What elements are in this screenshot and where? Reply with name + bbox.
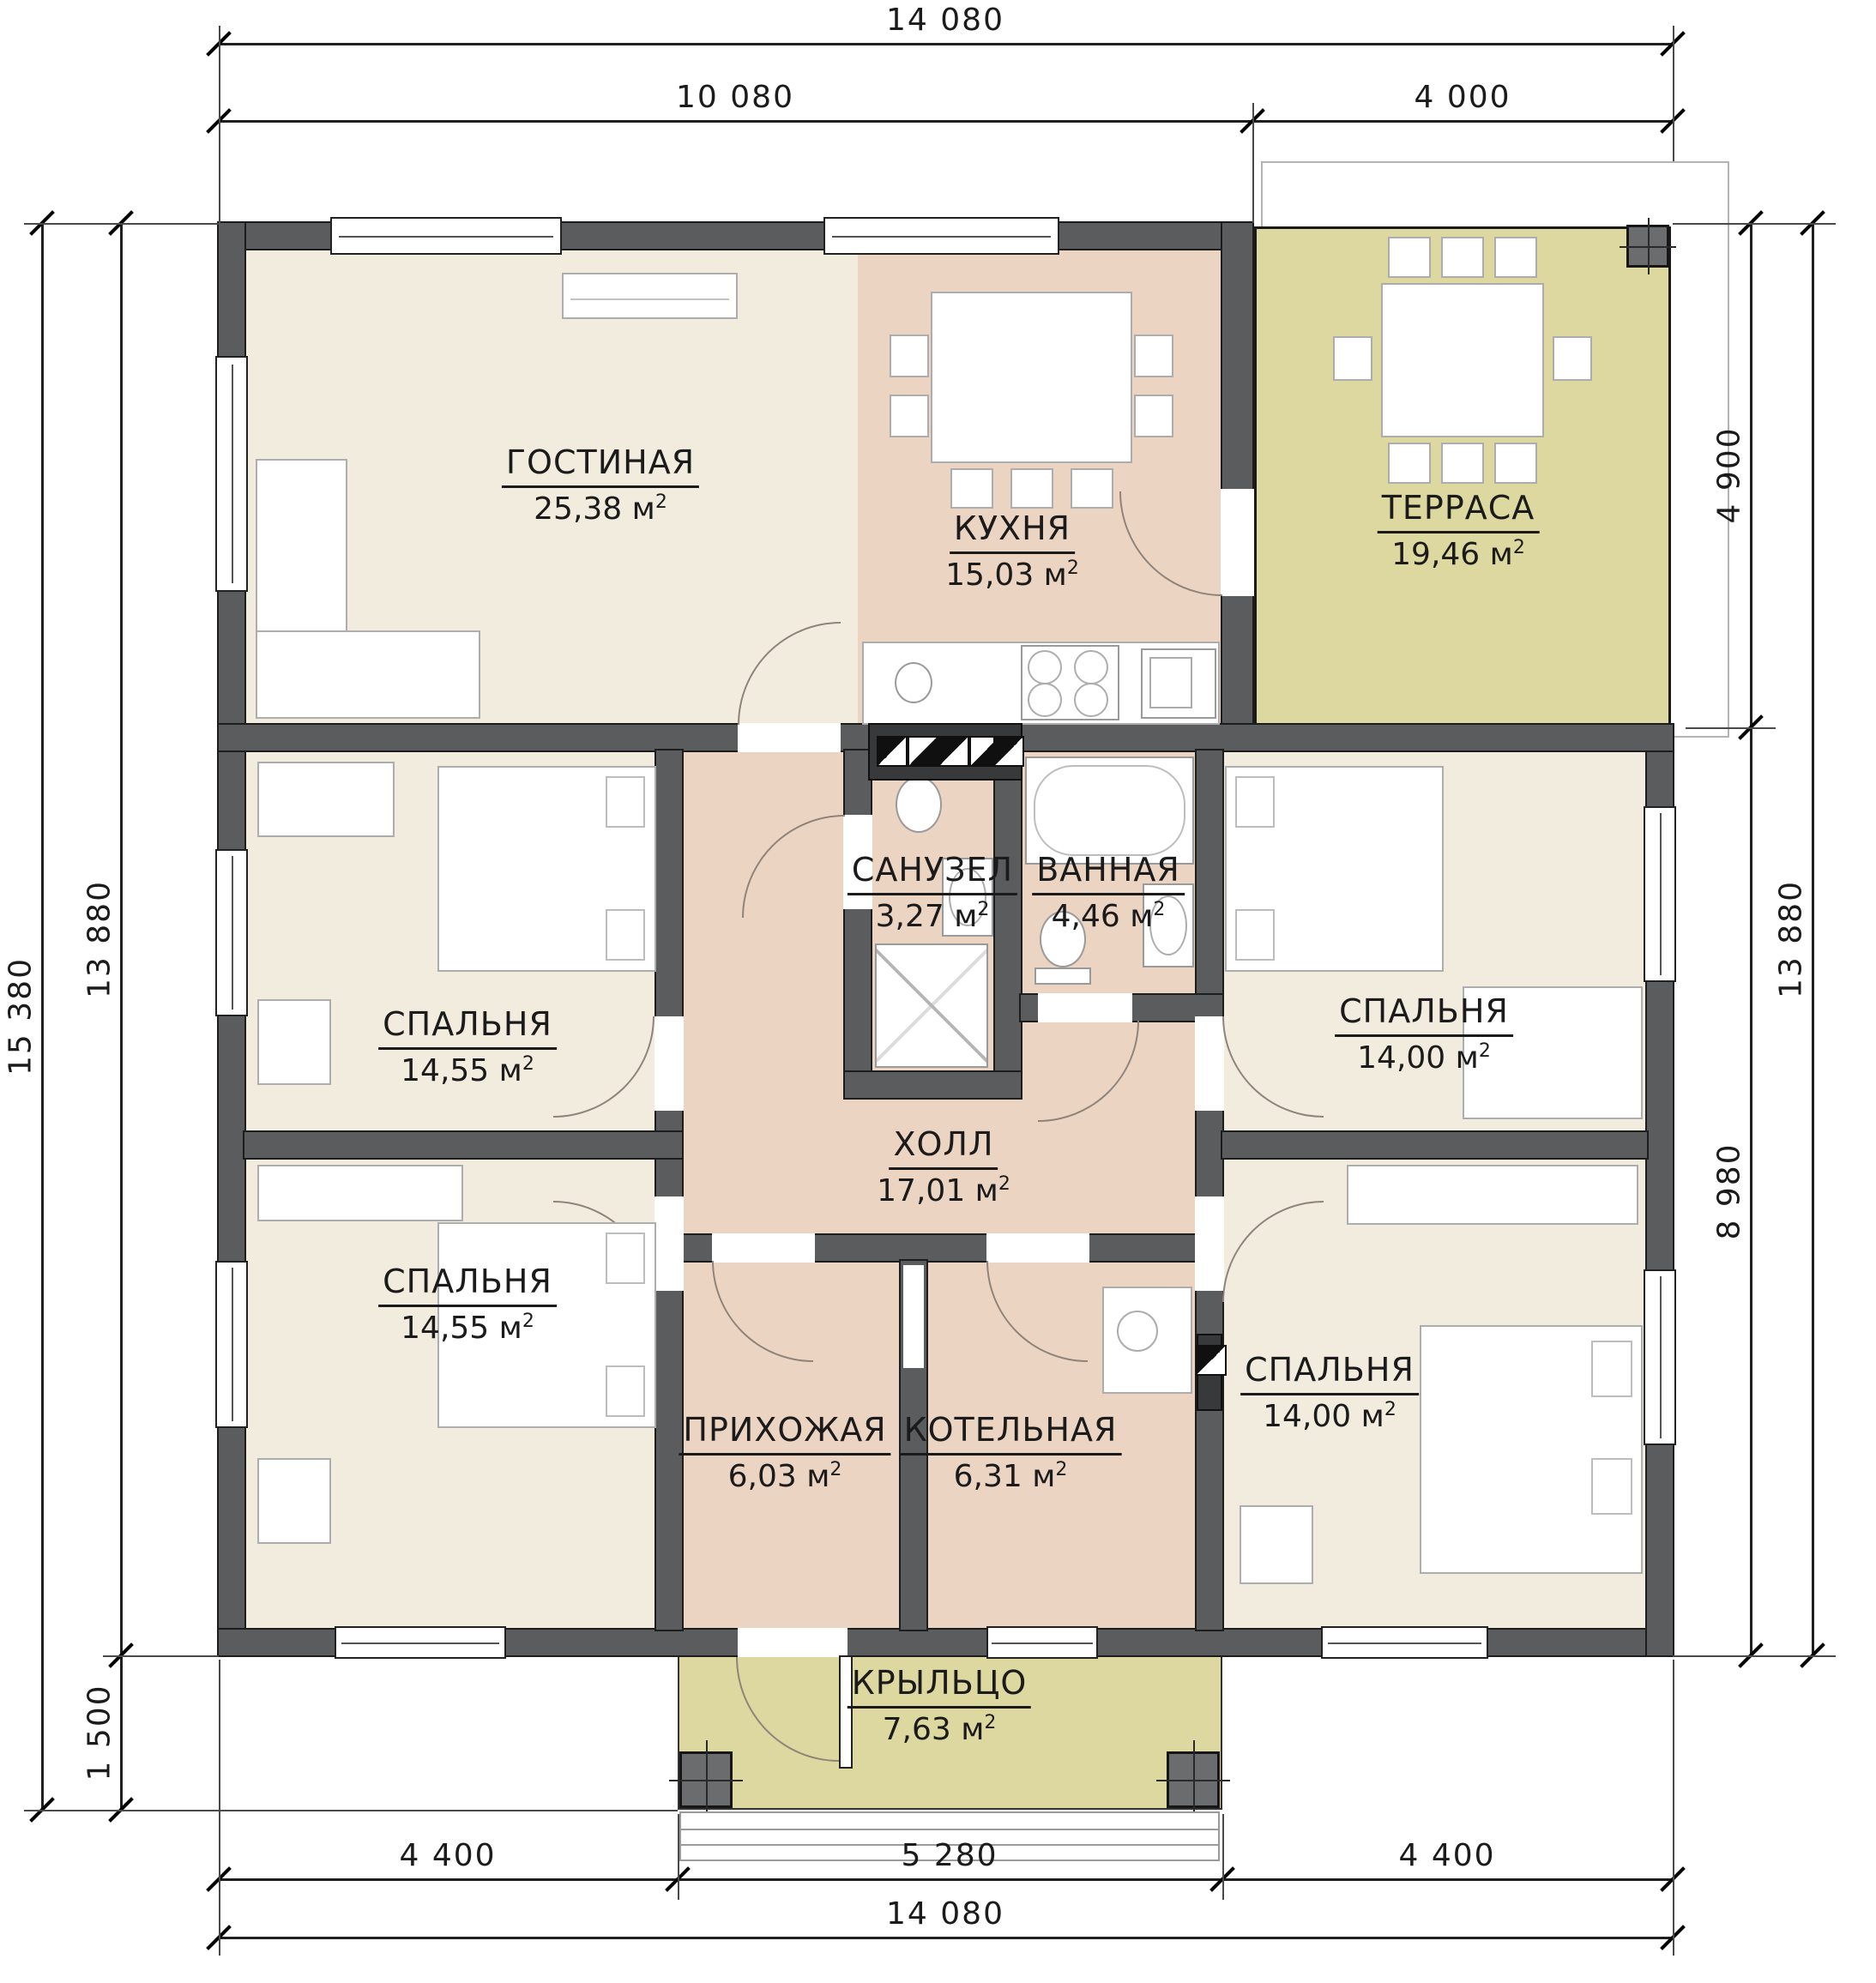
dim-line-top-inner [219,120,1673,123]
terrace-chair [1494,237,1537,278]
tv-unit [562,273,738,319]
extension-line [24,223,219,225]
extension-line [103,1655,219,1657]
vent-cell [908,736,938,767]
pillow [606,909,645,961]
wardrobe [1347,1165,1638,1225]
room-name: СПАЛЬНЯ [378,1005,557,1050]
opening-bedroom-tl [654,1016,684,1111]
room-label-bedroom-br: СПАЛЬНЯ 14,00 м2 [1240,1351,1419,1434]
room-name: КОТЕЛЬНАЯ [900,1411,1122,1456]
room-name: СПАЛЬНЯ [1240,1351,1419,1395]
room-name: КУХНЯ [950,509,1075,554]
dim-bottom-center: 5 280 [901,1838,998,1873]
vent-cell [1196,1345,1227,1376]
stove-burner [1074,650,1108,684]
wall-left-bedrooms [656,750,682,1630]
room-area: 14,00 м2 [1240,1399,1419,1434]
dim-left-porch: 1 500 [82,1684,118,1781]
extension-line [1222,1814,1224,1900]
opening-bedroom-tr [1195,1016,1224,1111]
vent-cell [993,736,1024,767]
window-bedroom-br-right [1644,1269,1676,1445]
extension-line [219,26,220,223]
room-area: 15,03 м2 [945,558,1079,593]
bath-toilet-tank [1035,967,1091,985]
kitchen-sink [895,662,932,703]
dining-chair [890,335,929,377]
extension-line [24,1810,678,1811]
window-kitchen-top [823,217,1059,255]
room-name: СПАЛЬНЯ [1335,992,1513,1037]
dim-top-terrace: 4 000 [1414,80,1511,115]
room-label-porch: КРЫЛЬЦО 7,63 м2 [848,1664,1031,1747]
room-label-terrace: ТЕРРАСА 19,46 м2 [1378,489,1540,572]
shower [875,943,988,1068]
room-label-wc: САНУЗЕЛ 3,27 м2 [848,851,1017,934]
dim-line-right-inner [1750,223,1752,1655]
dim-right-terrace: 4 900 [1712,426,1747,523]
armchair [257,1458,331,1544]
fridge-inner [1149,657,1192,708]
dim-right-bedrooms: 8 980 [1712,1142,1747,1239]
room-name: ХОЛЛ [889,1125,998,1170]
wall-left-bedrooms-divider [244,1132,682,1158]
room-name: СПАЛЬНЯ [378,1263,557,1307]
room-name: ТЕРРАСА [1378,489,1540,533]
terrace-chair [1553,336,1592,381]
opening-boiler [986,1233,1089,1263]
dim-left-house: 13 880 [82,880,118,998]
porch-column [679,1751,733,1808]
dim-bottom-left: 4 400 [399,1838,496,1873]
opening-bedroom-br [1195,1196,1224,1291]
wall-wc-bottom [845,1072,1021,1098]
armchair [1240,1505,1313,1584]
room-area: 4,46 м2 [1032,899,1185,934]
dim-bottom-right: 4 400 [1398,1838,1495,1873]
dining-table [931,292,1132,463]
extension-line [1252,103,1254,223]
dim-top-total: 14 080 [886,3,1004,38]
room-label-kitchen: КУХНЯ 15,03 м2 [945,509,1079,593]
dining-chair [890,395,929,437]
porch-column [1167,1751,1220,1808]
dining-chair [950,468,993,509]
terrace-chair [1333,336,1372,381]
pillow [1235,909,1275,961]
terrace-chair [1388,443,1431,484]
pillow [606,1365,645,1417]
room-area: 3,27 м2 [848,899,1017,934]
window-bedroom-bl-bottom [335,1626,506,1659]
opening-living-hall [738,723,841,752]
stove-burner [1074,683,1108,717]
opening-entrance-door [738,1628,848,1657]
boiler-burner [1117,1311,1158,1352]
terrace-chair [1441,237,1484,278]
window-bedroom-tr-right [1644,806,1676,982]
window-boiler-porch [986,1626,1098,1659]
wall-right-bedrooms-divider [1222,1132,1647,1158]
stove-burner [1028,683,1062,717]
wall-kitchen-terrace [1222,223,1252,750]
dim-line-right-outer [1812,223,1814,1655]
window-living-top [330,217,562,255]
opening-kitchen-terrace [1221,489,1254,596]
wardrobe [257,1165,463,1221]
room-area: 14,55 м2 [378,1311,557,1346]
extension-line [1673,1660,1674,1956]
sofa-bottom-section [256,630,480,719]
bathtub-inner [1034,765,1185,856]
room-area: 6,31 м2 [900,1459,1122,1494]
window-bedroom-br-bottom [1321,1626,1488,1659]
dining-chair [1071,468,1113,509]
extension-line [1686,727,1776,729]
room-label-bedroom-tl: СПАЛЬНЯ 14,55 м2 [378,1005,557,1088]
dim-line-left-inner [120,223,123,1810]
dim-line-bottom-outer [219,1937,1673,1939]
room-area: 14,00 м2 [1335,1040,1513,1076]
pillow [606,776,645,828]
room-label-boiler: КОТЕЛЬНАЯ 6,31 м2 [900,1411,1122,1494]
room-area: 7,63 м2 [848,1712,1031,1747]
toilet-bowl [896,776,942,833]
room-area: 25,38 м2 [502,491,699,527]
dining-chair [1134,335,1173,377]
dim-line-top-outer [219,43,1673,45]
wall-right-bedrooms [1197,750,1222,1630]
room-area: 6,03 м2 [679,1459,890,1494]
window-living-left [215,356,248,592]
room-label-bedroom-tr: СПАЛЬНЯ 14,00 м2 [1335,992,1513,1076]
room-name: САНУЗЕЛ [848,851,1017,895]
dim-line-bottom-inner [219,1878,1673,1881]
dim-line-left-outer [41,223,44,1810]
dim-left-total: 15 380 [3,957,39,1076]
pillow [1591,1341,1632,1397]
dim-top-main: 10 080 [676,80,794,115]
dining-chair [1134,395,1173,437]
opening-bedroom-bl [654,1196,684,1291]
window-bedroom-tl-left [215,849,248,1016]
extension-line [1673,26,1674,161]
terrace-chair [1441,443,1484,484]
room-name: ПРИХОЖАЯ [679,1411,890,1456]
armchair [257,999,331,1085]
dining-chair [1010,468,1053,509]
terrace-chair [1388,237,1431,278]
bathtub [1025,756,1194,865]
extension-line [678,1814,679,1900]
extension-line [1673,223,1836,225]
room-label-bedroom-bl: СПАЛЬНЯ 14,55 м2 [378,1263,557,1346]
dresser [257,762,395,837]
pillow [1235,776,1275,828]
extension-line [1673,1655,1836,1657]
terrace-table [1381,283,1544,437]
extension-line [219,1660,220,1956]
floor-plan: ГОСТИНАЯ 25,38 м2 КУХНЯ 15,03 м2 ТЕРРАСА… [0,0,1876,1983]
room-label-entry: ПРИХОЖАЯ 6,03 м2 [679,1411,890,1494]
room-label-hall: ХОЛЛ 17,01 м2 [877,1125,1010,1208]
room-name: ГОСТИНАЯ [502,443,699,488]
dim-bottom-total: 14 080 [886,1896,1004,1932]
opening-entry-boiler [903,1265,924,1368]
room-label-living: ГОСТИНАЯ 25,38 м2 [502,443,699,527]
terrace-chair [1494,443,1537,484]
pillow [1591,1458,1632,1515]
opening-bath-door [1038,993,1132,1022]
room-label-bath: ВАННАЯ 4,46 м2 [1032,851,1185,934]
pillow [606,1233,645,1284]
room-area: 19,46 м2 [1378,537,1540,572]
terrace-column [1626,225,1669,268]
room-name: КРЫЛЬЦО [848,1664,1031,1709]
dim-right-house: 13 880 [1774,880,1809,998]
stove-burner [1028,650,1062,684]
window-bedroom-bl-left [215,1261,248,1428]
vent-cell [877,736,908,767]
opening-entry [712,1233,815,1263]
room-area: 14,55 м2 [378,1053,557,1088]
room-area: 17,01 м2 [877,1173,1010,1208]
vent-cell [938,736,969,767]
room-name: ВАННАЯ [1032,851,1185,895]
